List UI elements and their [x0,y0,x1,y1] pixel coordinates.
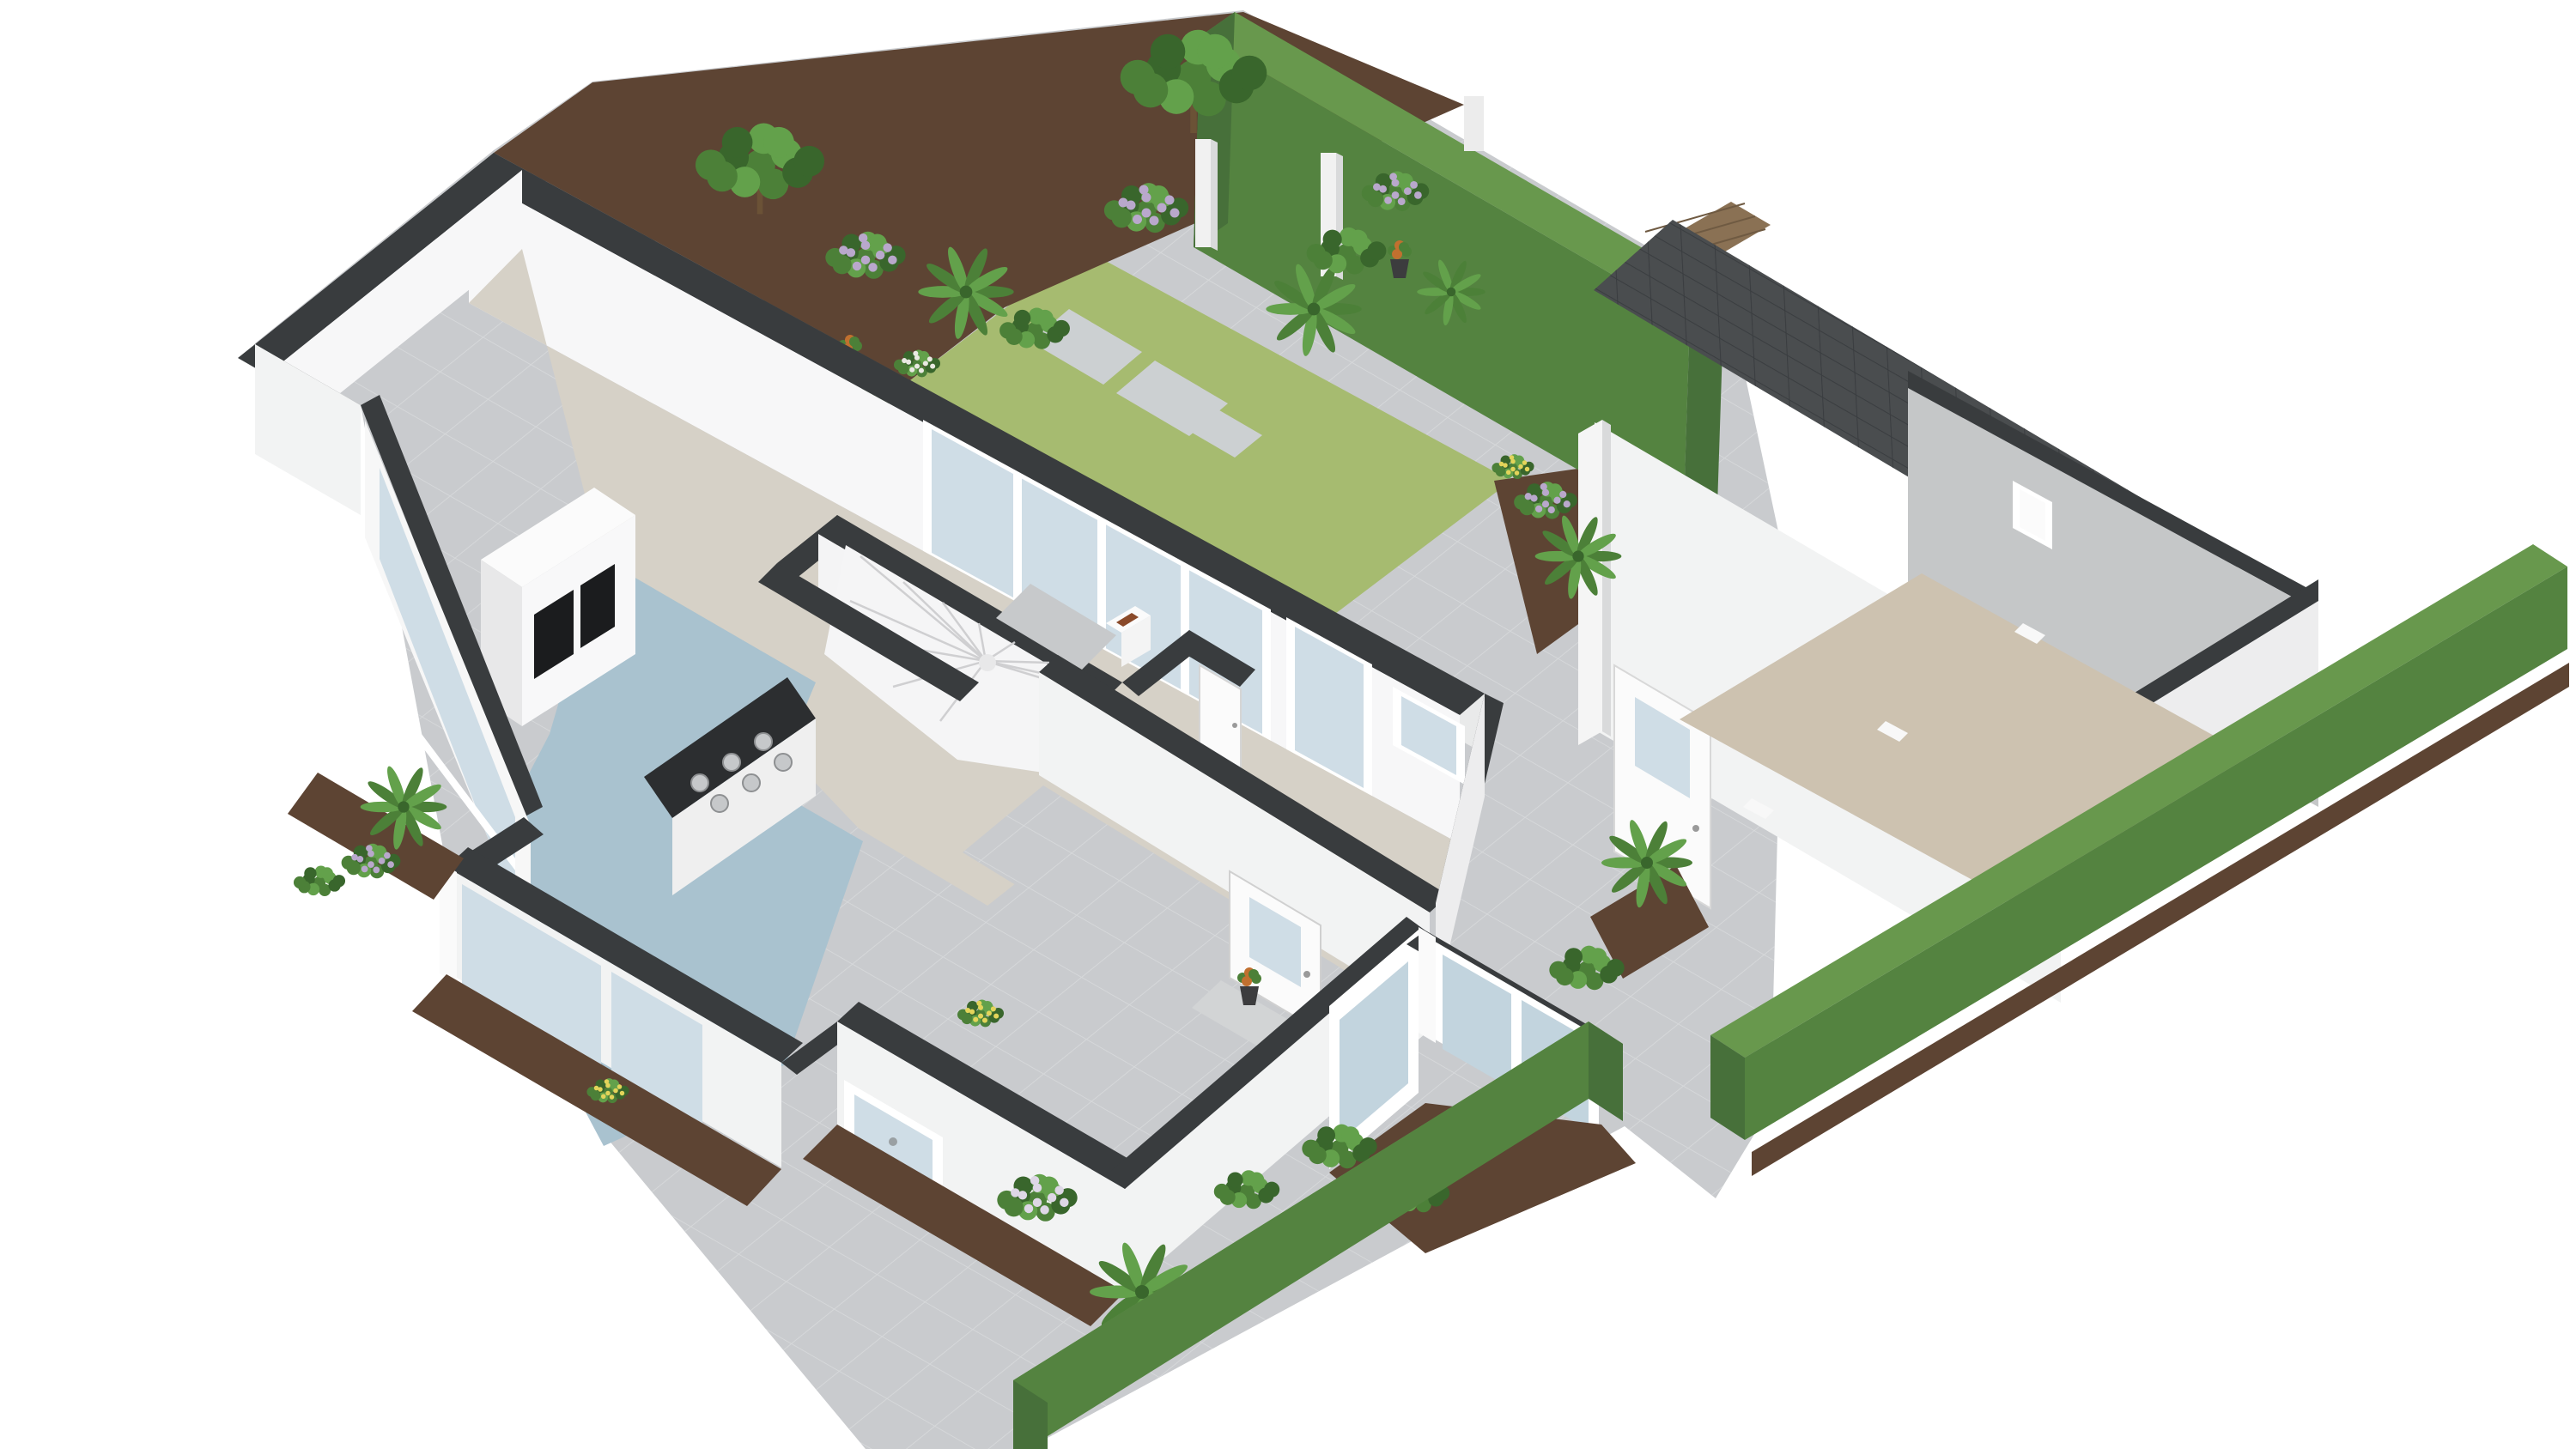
path-flower-purple-bloom [1525,493,1532,500]
front-palm-crown [1641,857,1653,869]
garden-flower-bush-purple-bloom [861,256,870,264]
front-flower-white-bloom [1048,1193,1056,1202]
hob-burner [743,774,760,791]
front-fern-foliage [1589,948,1607,966]
west-flower-purple-bloom [351,854,358,861]
west-palm-crown [398,801,409,812]
garden-tree-foliage [696,149,726,180]
front-flower-white-bloom [1054,1185,1063,1194]
path-flower-yellow-bloom [1515,470,1520,476]
west-flower-purple-bloom [373,867,380,874]
sink-faucet [889,1137,897,1146]
path-flower-purple-bloom [1559,491,1566,498]
west-flower-purple-bloom [387,861,394,868]
front-flower-yellow-bloom [610,1094,615,1100]
garden-fern-foliage [1367,241,1386,260]
garden-fern-foliage [1307,244,1326,263]
garden-fern-foliage [1349,230,1368,249]
garden-palm-crown [960,286,973,299]
front-flower-yellow-bloom [991,1006,996,1011]
path-flower-yellow-bloom [1518,464,1523,470]
garden-bush-foliage [1014,310,1031,327]
garden-flower-white-bloom [914,364,920,369]
garden-flower-bush-purple-bloom [1410,181,1418,189]
garden-flower-bush-purple-bloom [876,251,884,259]
front-flower-yellow-bloom [993,1014,999,1019]
garden-lamp-post-side [1211,139,1218,251]
front-palm-crown [1135,1285,1149,1299]
garden-flower-bush-purple-bloom [1150,216,1159,226]
front-flower-yellow-bloom [605,1079,610,1084]
garden-flower-bush-purple-bloom [1157,203,1167,213]
west-fern-foliage [294,876,306,888]
front-flower-yellow-bloom [601,1094,606,1100]
corner-window-post [1419,927,1436,1043]
front-fern-foliage [1607,959,1625,977]
front-flower-yellow-bloom [987,1010,992,1016]
front-flower-yellow-bloom [594,1086,599,1091]
front-flower-white-bloom [1033,1198,1042,1207]
3d-floor-plan-render [0,0,2576,1449]
garden-flower-bush-purple-bloom [1404,187,1412,195]
front-flower-white-bloom [1024,1204,1033,1213]
west-flower-purple-bloom [361,866,368,873]
garden-bush-foliage [1053,320,1070,337]
path-flower-purple-bloom [1535,506,1542,512]
path-flower-yellow-bloom [1522,460,1528,465]
hob-burner [691,774,708,791]
front-pot-plant-foliage [1249,969,1259,979]
hob-burner [755,733,772,750]
garden-flower-white-bloom [923,361,928,366]
front-fern-foliage [1214,1184,1230,1199]
front-flower-yellow-bloom [613,1088,618,1094]
garden-flower-bush-purple-bloom [839,246,848,254]
garden-flower-bush-purple-bloom [1384,197,1392,204]
garden-tree-foliage [1121,60,1156,95]
front-shrub-foliage [1359,1137,1377,1155]
west-flower-purple-bloom [384,852,391,859]
garden-flower-white-bloom [927,356,933,361]
front-shrub-foliage [1341,1126,1359,1144]
garden-flower-bush-purple-bloom [1392,191,1400,199]
garden-bush-foliage [999,322,1017,339]
garden-flower-bush-purple-bloom [1373,183,1381,191]
path-flower-purple-bloom [1548,506,1555,513]
front-flower-yellow-bloom [620,1091,625,1096]
garden-tree-foliage [1232,56,1267,91]
garden-flower-bush-purple-bloom [1389,173,1397,180]
front-flower-white-bloom [1060,1198,1068,1207]
path-flower-yellow-bloom [1510,455,1515,460]
garden-palm-crown [1308,303,1321,316]
front-flower-yellow-bloom [605,1091,611,1096]
garden-flower-bush-purple-bloom [1170,209,1180,218]
front-flower-white-bloom [1030,1176,1039,1185]
hall-door-handle [1232,723,1237,728]
garden-fern-foliage [1323,230,1342,249]
garden-flower-bush-purple-bloom [1142,209,1151,218]
garden-flower-bush-purple-bloom [853,262,861,270]
garden-flower-bush-purple-bloom [859,233,867,242]
garden-tree-foliage [763,127,794,158]
front-flower-yellow-bloom [976,1001,981,1006]
front-shrub-foliage [1302,1140,1320,1158]
front-door-handle [1303,971,1310,978]
path-flower-purple-bloom [1564,500,1571,507]
path-flower-yellow-bloom [1506,470,1511,476]
garden-flower-white-bloom [913,351,918,356]
garden-flower-bush-purple-bloom [1133,215,1142,224]
path-flower-purple-bloom [1553,497,1560,504]
garage-door-handle [1692,825,1699,832]
garden-flower-bush-purple-bloom [1119,198,1128,208]
front-flower-white-bloom [1011,1188,1019,1197]
garden-flower-bush-purple-bloom [1398,197,1406,205]
garden-tree-foliage [1198,34,1233,70]
garden-flower-bush-purple-bloom [883,243,891,252]
garden-tree-foliage [1151,34,1186,70]
sliding-door-mullion [1013,471,1022,604]
west-flower-purple-bloom [379,858,386,864]
front-flower-yellow-bloom [982,1018,987,1023]
path-flower-purple-bloom [1540,483,1547,490]
garden-palm-crown [1447,288,1456,297]
hob-burner [711,795,728,812]
floorplan-3d-render [0,0,2576,1449]
garden-flower-white-bloom [919,368,924,373]
garden-tree-foliage [722,127,753,158]
garden-flower-white-bloom [909,367,914,373]
front-shrub-foliage [1317,1126,1335,1144]
west-flower-purple-bloom [366,845,373,852]
path-flower-yellow-bloom [1499,462,1504,467]
hedge-fence-post [1464,96,1484,151]
path-flower-yellow-bloom [1510,467,1516,472]
garden-flower-bush-purple-bloom [888,256,896,264]
front-flower-yellow-bloom [617,1084,623,1089]
hob-burner [723,754,740,771]
path-palm-crown [1572,550,1583,561]
garden-tree-foliage [793,146,824,177]
garden-flower-bush-purple-bloom [1414,191,1422,199]
front-fern-foliage [1227,1172,1242,1187]
garden-bush-foliage [1036,310,1054,327]
hob-burner [775,754,792,771]
front-flower-yellow-bloom [978,1014,983,1019]
west-fern-foliage [304,867,316,879]
front-flower-white-bloom [1040,1205,1048,1214]
west-flower-purple-bloom [368,861,374,868]
front-fern-foliage [1264,1182,1279,1197]
garden-flower-bush-purple-bloom [868,263,877,271]
garden-flower-bush-purple-bloom [1139,185,1149,195]
garden-flower-bush-purple-bloom [1165,196,1175,205]
stair-newel [979,654,996,671]
garden-lamp-post [1195,139,1211,247]
front-fern-foliage [1549,961,1567,979]
sliding-door-mullion [1181,563,1189,696]
path-flower-yellow-bloom [1525,467,1530,472]
front-fern-foliage [1249,1172,1264,1187]
front-fern-foliage [1564,948,1583,966]
garden-flower-white-bloom [902,358,907,363]
front-flower-yellow-bloom [973,1017,978,1022]
west-fern-foliage [333,875,345,887]
west-fern-foliage [321,867,333,879]
garden-pot-plant-foliage [1399,242,1409,252]
path-flower-purple-bloom [1542,500,1549,507]
garden-pot-plant-foliage [849,336,860,347]
front-flower-yellow-bloom [965,1008,970,1013]
garden-flower-white-bloom [930,364,935,369]
